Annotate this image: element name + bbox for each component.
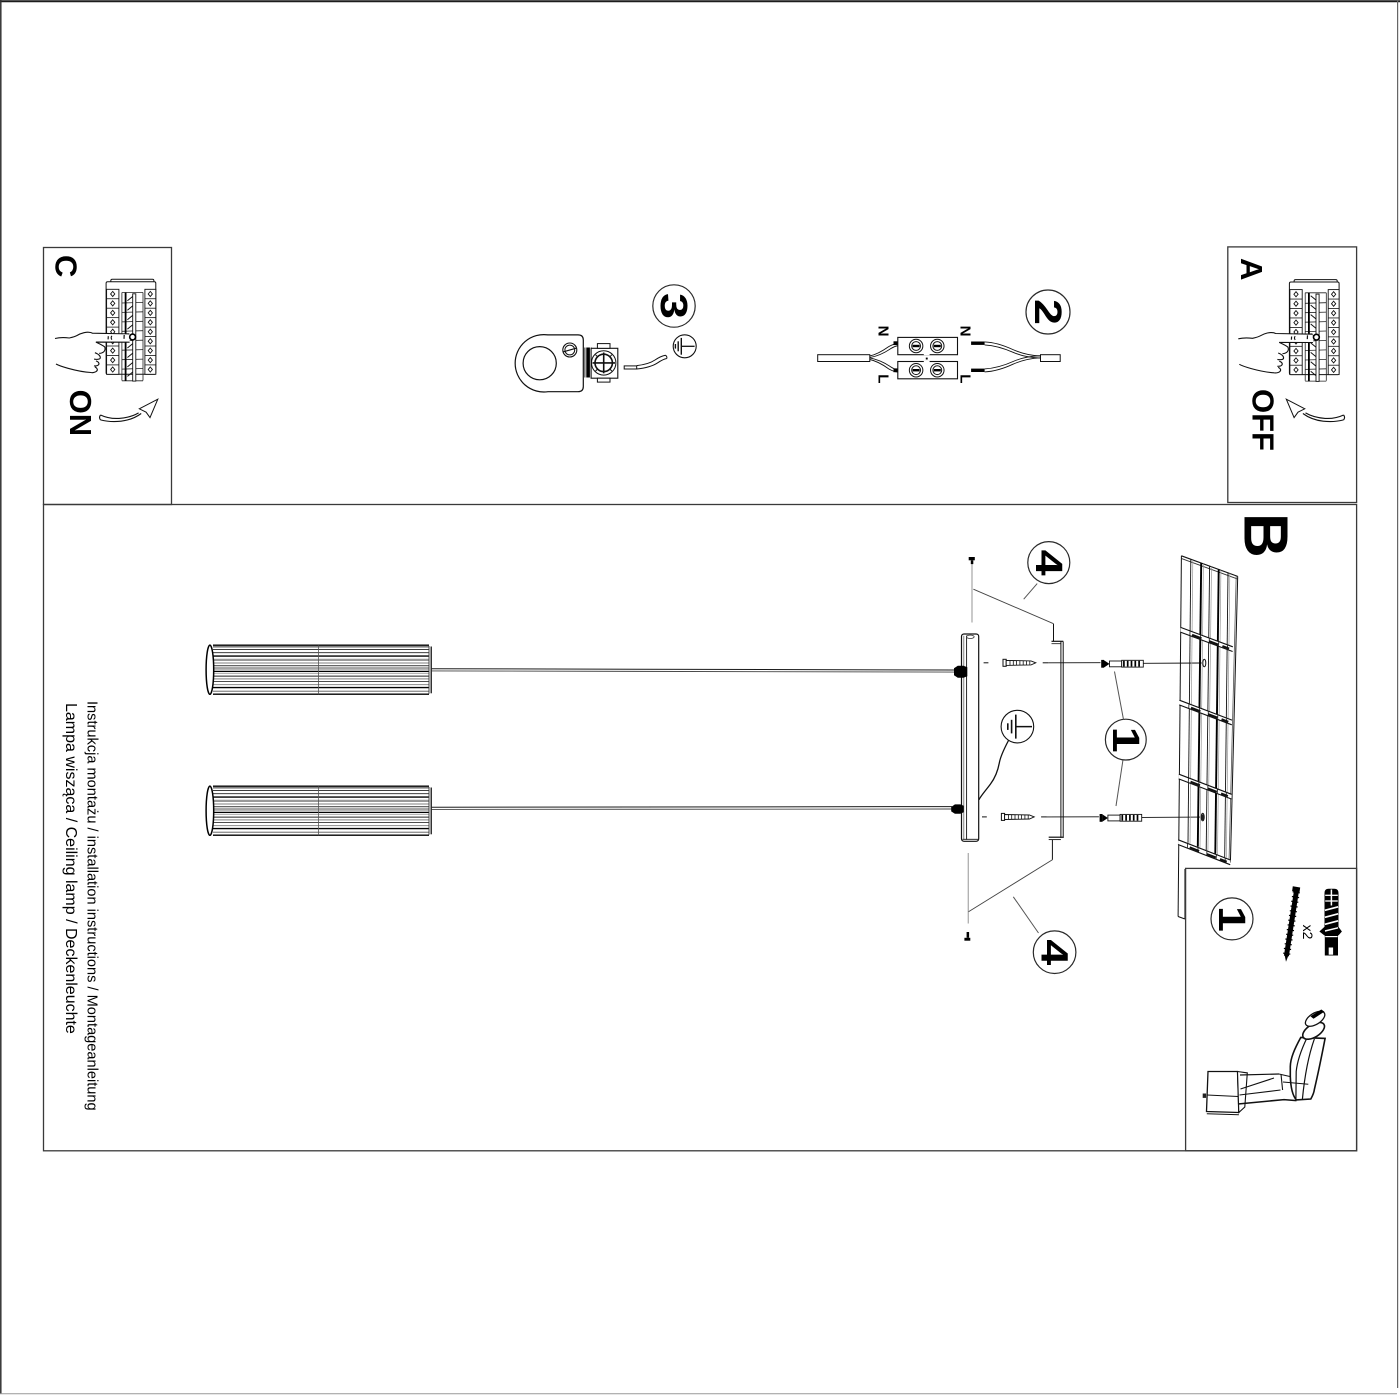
svg-text:2: 2 [1026,299,1068,325]
svg-text:3: 3 [652,293,694,319]
svg-text:N: N [875,326,892,337]
svg-text:x2: x2 [1300,925,1316,940]
svg-text:1: 1 [1104,727,1146,753]
svg-text:Instrukcja montażu / installat: Instrukcja montażu / installation instru… [83,701,99,1111]
svg-text:C: C [49,255,84,277]
svg-text:B: B [1231,513,1300,558]
svg-text:L: L [956,374,973,383]
svg-text:1: 1 [1210,906,1252,932]
svg-text:N: N [956,326,973,337]
svg-text:OFF: OFF [1246,389,1281,451]
svg-text:Lampa wisząca / Ceiling lamp /: Lampa wisząca / Ceiling lamp / Deckenleu… [62,703,79,1034]
svg-text:A: A [1234,258,1269,280]
svg-text:L: L [875,374,892,383]
svg-text:ON: ON [63,390,98,437]
svg-text:4: 4 [1027,550,1069,576]
svg-text:4: 4 [1033,939,1075,965]
